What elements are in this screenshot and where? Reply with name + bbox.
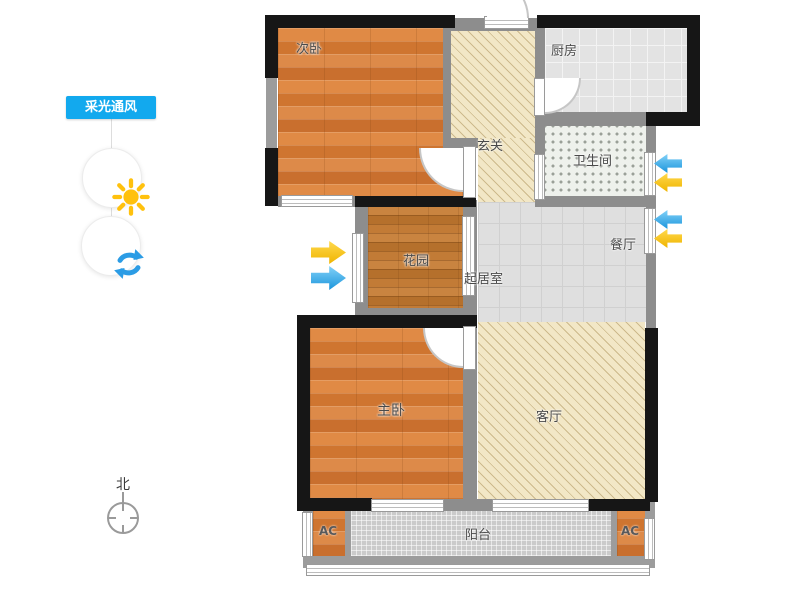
- window: [644, 518, 655, 560]
- daylight-arrow-icon: [654, 173, 682, 192]
- window: [644, 208, 656, 254]
- daylight-ventilation-panel-button[interactable]: 采光通风: [66, 96, 156, 119]
- exterior-wall: [265, 15, 278, 78]
- compass-north-label: 北: [116, 474, 130, 494]
- door-leaf: [534, 78, 545, 116]
- window: [644, 152, 656, 196]
- room-label-ac-right: AC: [621, 524, 639, 538]
- ventilation-tool-button[interactable]: [81, 216, 141, 276]
- exterior-wall: [589, 499, 650, 511]
- window: [352, 233, 364, 303]
- wall: [443, 499, 498, 511]
- room-label-hallway: 玄关: [477, 135, 503, 154]
- window: [371, 499, 444, 512]
- room-label-ac-left: AC: [319, 524, 337, 538]
- airflow-arrow-icon: [654, 154, 682, 173]
- floor-plan-stage: 采光通风: [0, 0, 800, 600]
- daylight-tool-button[interactable]: [82, 148, 142, 208]
- wall: [535, 112, 646, 126]
- room-label-master: 主卧: [377, 400, 405, 420]
- exterior-wall: [297, 315, 310, 510]
- window: [281, 195, 353, 207]
- wall: [266, 76, 277, 150]
- room-living-dining-floor: [478, 202, 646, 322]
- room-label-parlor: 客厅: [536, 406, 562, 425]
- room-label-living: 起居室: [464, 268, 503, 287]
- room-label-balcony: 阳台: [465, 524, 491, 543]
- wall: [443, 28, 451, 140]
- exterior-wall: [646, 112, 700, 126]
- connector-line: [111, 119, 112, 149]
- airflow-arrow-icon: [654, 210, 682, 229]
- airflow-arrow-icon: [311, 266, 346, 290]
- exterior-wall: [265, 148, 278, 206]
- exterior-wall: [297, 315, 477, 328]
- room-hallway-floor: [451, 28, 535, 142]
- room-label-garden: 花园: [403, 250, 429, 269]
- door-leaf: [463, 326, 476, 370]
- door-arc-entrance: [487, 0, 529, 18]
- exterior-wall: [265, 15, 455, 28]
- exterior-wall: [645, 328, 658, 502]
- exterior-wall: [537, 15, 700, 28]
- door-leaf: [463, 146, 476, 198]
- room-label-bathroom: 卫生间: [573, 150, 612, 169]
- daylight-arrow-icon: [654, 229, 682, 248]
- room-label-kitchen: 厨房: [551, 40, 577, 59]
- bathroom-sliding-door: [534, 154, 545, 200]
- room-label-bedroom2: 次卧: [296, 38, 322, 57]
- balcony-divider: [345, 505, 351, 558]
- window: [302, 512, 313, 557]
- room-label-dining: 餐厅: [610, 234, 636, 253]
- balcony-window: [306, 564, 650, 576]
- wall: [535, 196, 646, 207]
- exterior-wall: [687, 15, 700, 118]
- daylight-arrow-icon: [311, 241, 346, 264]
- balcony-divider: [611, 505, 617, 558]
- window: [492, 499, 589, 512]
- exterior-wall: [355, 196, 476, 207]
- exterior-wall: [297, 498, 372, 511]
